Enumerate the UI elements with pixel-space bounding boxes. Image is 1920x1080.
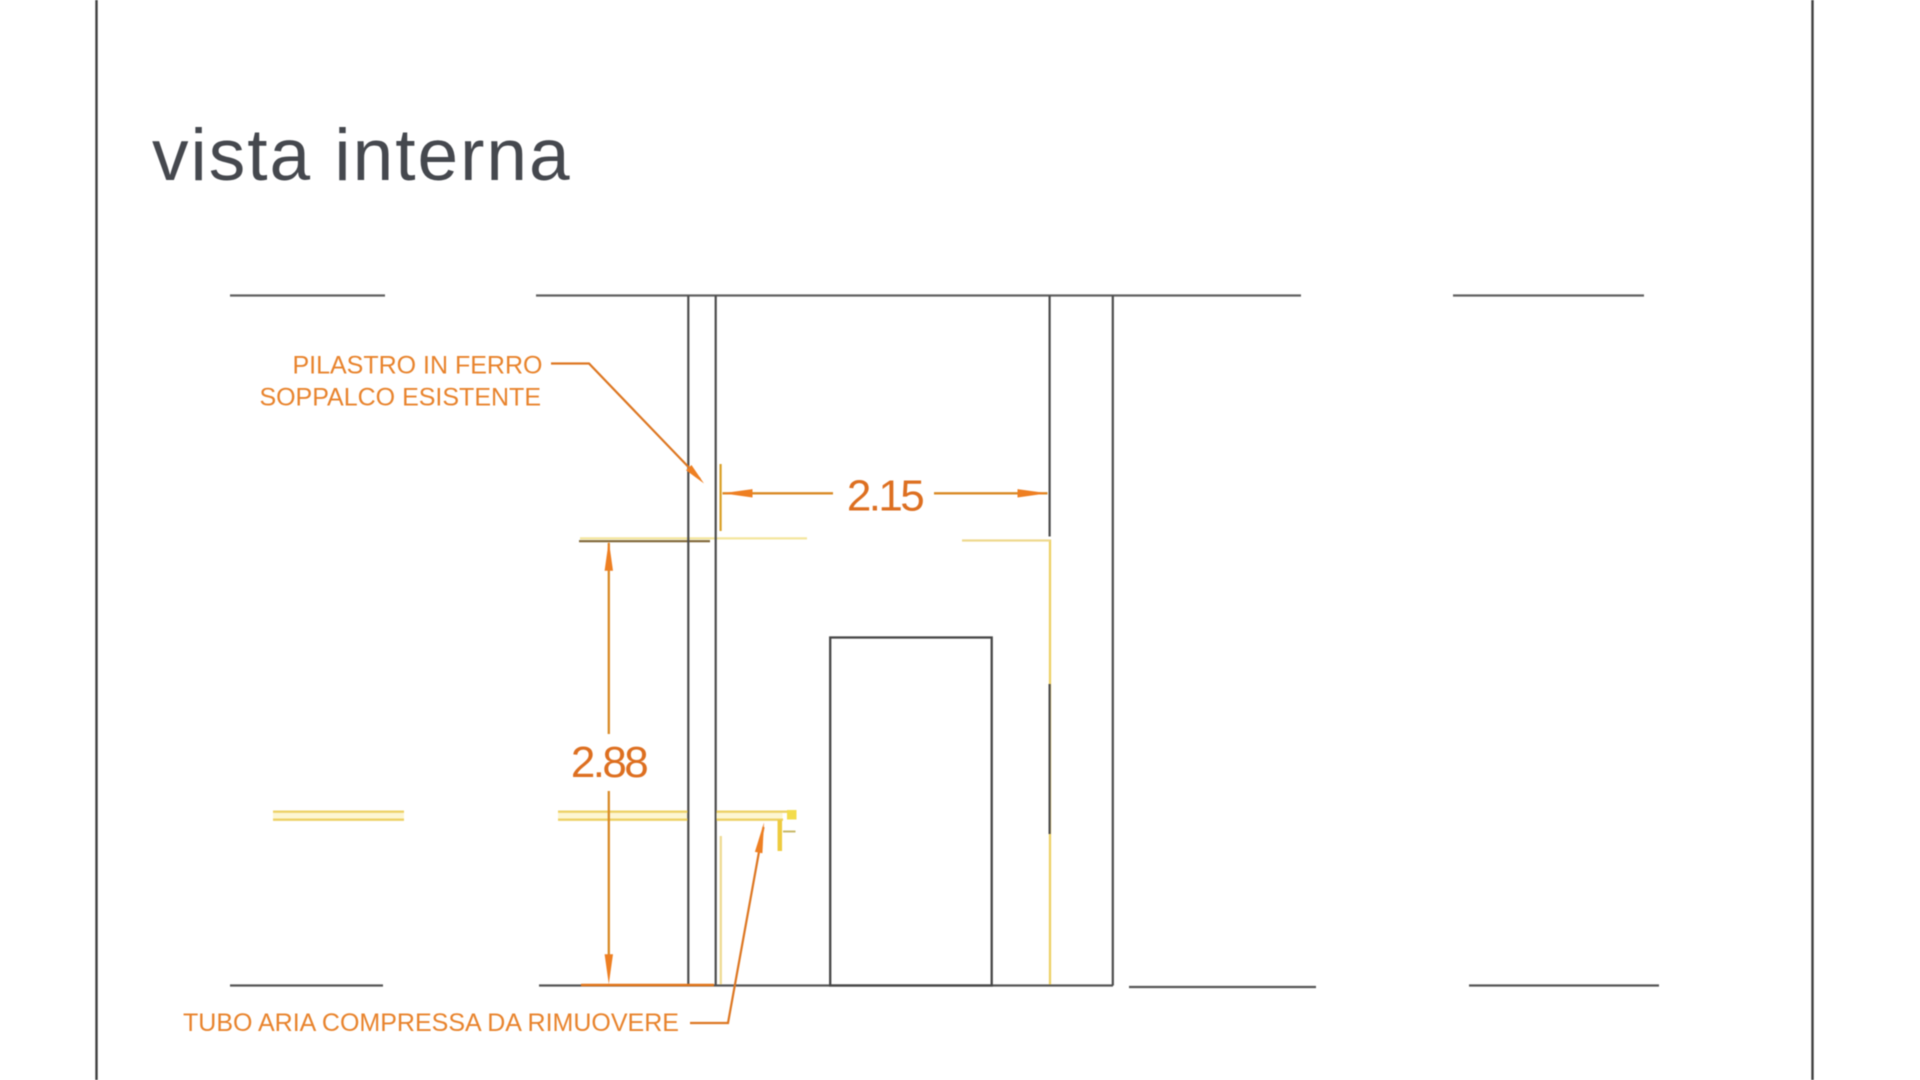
svg-text:vista interna: vista interna xyxy=(152,115,572,196)
svg-text:2.88: 2.88 xyxy=(571,738,647,787)
svg-text:2.15: 2.15 xyxy=(847,472,923,521)
svg-text:SOPPALCO ESISTENTE: SOPPALCO ESISTENTE xyxy=(259,384,541,412)
svg-text:TUBO ARIA COMPRESSA DA RIMUOVE: TUBO ARIA COMPRESSA DA RIMUOVERE xyxy=(183,1009,679,1037)
svg-text:PILASTRO IN FERRO: PILASTRO IN FERRO xyxy=(292,352,542,380)
